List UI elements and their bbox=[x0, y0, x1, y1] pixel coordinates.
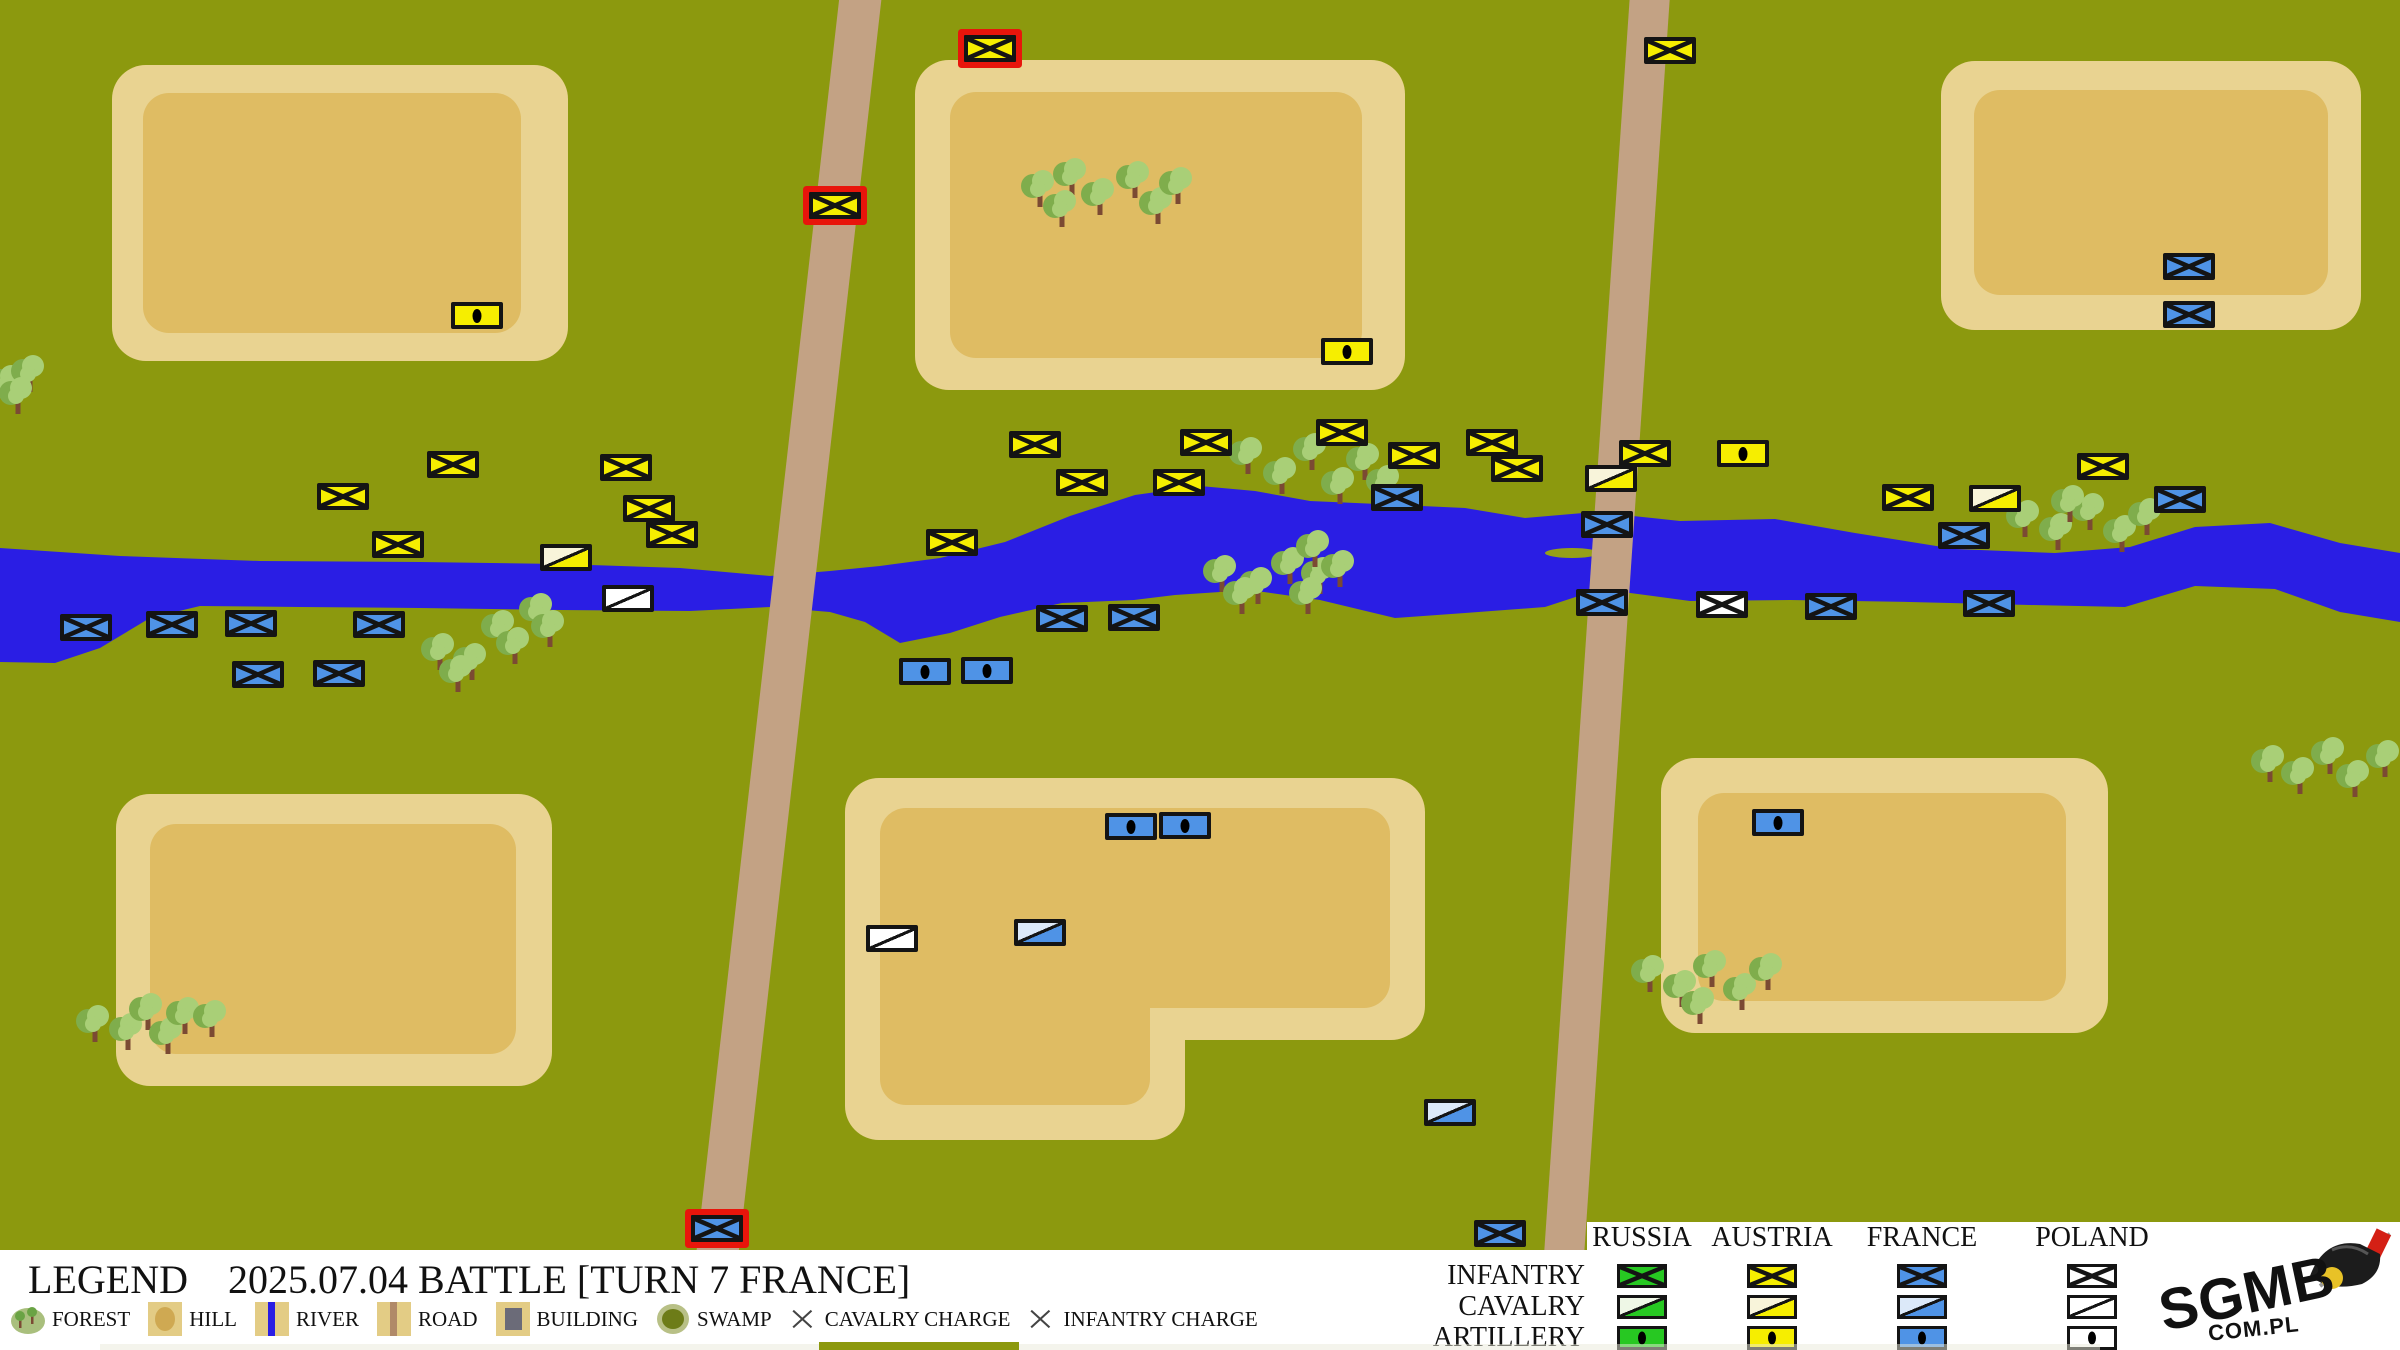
unit-austria-infantry[interactable] bbox=[1153, 469, 1205, 496]
unit-france-cavalry[interactable] bbox=[1424, 1099, 1476, 1126]
legend-bottom-strip bbox=[100, 1344, 2100, 1350]
legend-item-building: BUILDING bbox=[495, 1301, 638, 1337]
artillery-dot bbox=[1343, 345, 1352, 359]
unit-austria-infantry[interactable] bbox=[600, 454, 652, 481]
unit-austria-infantry[interactable] bbox=[1466, 429, 1518, 456]
unit-poland-infantry[interactable] bbox=[1696, 591, 1748, 618]
legend-item-label: FOREST bbox=[52, 1307, 130, 1332]
legend-item-river: RIVER bbox=[254, 1301, 359, 1337]
unit-austria-infantry[interactable] bbox=[1180, 429, 1232, 456]
unit-france-infantry[interactable] bbox=[1805, 593, 1857, 620]
artillery-dot bbox=[1638, 1332, 1646, 1345]
unit-france-infantry[interactable] bbox=[1963, 590, 2015, 617]
legend-unit-russia-cavalry bbox=[1617, 1295, 1667, 1319]
unit-austria-infantry[interactable] bbox=[646, 521, 698, 548]
unit-france-infantry-charging[interactable] bbox=[691, 1215, 743, 1242]
country-header-russia: RUSSIA bbox=[1592, 1222, 1692, 1254]
unit-austria-cavalry[interactable] bbox=[540, 544, 592, 571]
unit-austria-infantry[interactable] bbox=[2077, 453, 2129, 480]
unit-france-infantry[interactable] bbox=[1108, 604, 1160, 631]
unit-austria-artillery[interactable] bbox=[1321, 338, 1373, 365]
legend-item-label: CAVALRY CHARGE bbox=[825, 1307, 1011, 1332]
artillery-dot bbox=[1774, 816, 1783, 830]
legend-item-label: ROAD bbox=[418, 1307, 478, 1332]
unit-france-artillery[interactable] bbox=[899, 658, 951, 685]
legend-unit-poland-cavalry bbox=[2067, 1295, 2117, 1319]
wargame-screenshot: LEGEND 2025.07.04 BATTLE [TURN 7 FRANCE]… bbox=[0, 0, 2400, 1350]
unit-austria-infantry[interactable] bbox=[427, 451, 479, 478]
legend-item-label: BUILDING bbox=[537, 1307, 638, 1332]
legend-item-hill: HILL bbox=[147, 1301, 237, 1337]
unit-austria-infantry[interactable] bbox=[1009, 431, 1061, 458]
legend-unit-austria-infantry bbox=[1747, 1264, 1797, 1288]
unit-austria-infantry[interactable] bbox=[926, 529, 978, 556]
unit-austria-infantry-charging[interactable] bbox=[809, 192, 861, 219]
legend-item-label: RIVER bbox=[296, 1307, 359, 1332]
artillery-dot bbox=[1127, 820, 1136, 834]
unit-france-infantry[interactable] bbox=[1938, 522, 1990, 549]
unit-france-infantry[interactable] bbox=[1581, 511, 1633, 538]
unit-row-label-infantry: INFANTRY bbox=[1325, 1260, 1585, 1292]
building-icon bbox=[495, 1301, 531, 1337]
unit-france-infantry[interactable] bbox=[232, 661, 284, 688]
artillery-dot bbox=[983, 664, 992, 678]
unit-france-infantry[interactable] bbox=[2163, 301, 2215, 328]
legend-item-swamp: SWAMP bbox=[655, 1301, 772, 1337]
unit-france-infantry[interactable] bbox=[313, 660, 365, 687]
unit-france-infantry[interactable] bbox=[146, 611, 198, 638]
terrain-legend-row: FORESTHILLRIVERROADBUILDINGSWAMPCAVALRY … bbox=[10, 1300, 1275, 1338]
artillery-dot bbox=[2088, 1332, 2096, 1345]
artillery-dot bbox=[921, 665, 930, 679]
unit-austria-infantry[interactable] bbox=[1644, 37, 1696, 64]
infantry_charge-icon bbox=[1027, 1301, 1057, 1337]
swamp-icon bbox=[655, 1301, 691, 1337]
legend-item-label: SWAMP bbox=[697, 1307, 772, 1332]
unit-france-artillery[interactable] bbox=[1105, 813, 1157, 840]
battle-map bbox=[0, 0, 2400, 1250]
unit-austria-infantry-charging[interactable] bbox=[964, 35, 1016, 62]
country-header-austria: AUSTRIA bbox=[1711, 1222, 1832, 1254]
unit-france-infantry[interactable] bbox=[60, 614, 112, 641]
unit-france-artillery[interactable] bbox=[1159, 812, 1211, 839]
legend-item-forest: FOREST bbox=[10, 1301, 130, 1337]
unit-france-infantry[interactable] bbox=[1036, 605, 1088, 632]
unit-austria-infantry[interactable] bbox=[623, 495, 675, 522]
unit-austria-infantry[interactable] bbox=[1491, 455, 1543, 482]
unit-france-infantry[interactable] bbox=[1474, 1220, 1526, 1247]
legend-item-cavalry_charge: CAVALRY CHARGE bbox=[789, 1301, 1011, 1337]
legend-unit-france-infantry bbox=[1897, 1264, 1947, 1288]
unit-france-infantry[interactable] bbox=[1371, 484, 1423, 511]
legend-unit-poland-infantry bbox=[2067, 1264, 2117, 1288]
unit-austria-infantry[interactable] bbox=[317, 483, 369, 510]
unit-row-label-cavalry: CAVALRY bbox=[1325, 1291, 1585, 1323]
road-icon bbox=[376, 1301, 412, 1337]
artillery-dot bbox=[1181, 819, 1190, 833]
unit-france-artillery[interactable] bbox=[1752, 809, 1804, 836]
unit-austria-infantry[interactable] bbox=[1619, 440, 1671, 467]
artillery-dot bbox=[1739, 447, 1748, 461]
unit-austria-infantry[interactable] bbox=[1882, 484, 1934, 511]
artillery-dot bbox=[1918, 1332, 1926, 1345]
unit-france-infantry[interactable] bbox=[2163, 253, 2215, 280]
unit-poland-cavalry[interactable] bbox=[602, 585, 654, 612]
unit-france-artillery[interactable] bbox=[961, 657, 1013, 684]
unit-austria-infantry[interactable] bbox=[1316, 419, 1368, 446]
unit-austria-infantry[interactable] bbox=[1056, 469, 1108, 496]
unit-austria-artillery[interactable] bbox=[451, 302, 503, 329]
battle-title: 2025.07.04 BATTLE [TURN 7 FRANCE] bbox=[228, 1256, 910, 1303]
unit-france-infantry[interactable] bbox=[1576, 589, 1628, 616]
unit-france-infantry[interactable] bbox=[2154, 486, 2206, 513]
legend-item-label: INFANTRY CHARGE bbox=[1063, 1307, 1257, 1332]
unit-france-infantry[interactable] bbox=[225, 610, 277, 637]
units-layer bbox=[0, 0, 2400, 1250]
artillery-dot bbox=[473, 309, 482, 323]
legend-unit-russia-infantry bbox=[1617, 1264, 1667, 1288]
country-header-france: FRANCE bbox=[1867, 1222, 1977, 1254]
legend-unit-austria-cavalry bbox=[1747, 1295, 1797, 1319]
unit-austria-infantry[interactable] bbox=[372, 531, 424, 558]
unit-austria-infantry[interactable] bbox=[1388, 442, 1440, 469]
hill-icon bbox=[147, 1301, 183, 1337]
unit-austria-cavalry[interactable] bbox=[1585, 465, 1637, 492]
country-header-poland: POLAND bbox=[2035, 1222, 2149, 1254]
unit-poland-cavalry[interactable] bbox=[866, 925, 918, 952]
legend-item-label: HILL bbox=[189, 1307, 237, 1332]
unit-austria-artillery[interactable] bbox=[1717, 440, 1769, 467]
legend-item-infantry_charge: INFANTRY CHARGE bbox=[1027, 1301, 1257, 1337]
map-edge-strip bbox=[819, 1342, 1019, 1350]
forest-icon bbox=[10, 1301, 46, 1337]
legend-title: LEGEND bbox=[28, 1256, 188, 1303]
unit-france-infantry[interactable] bbox=[353, 611, 405, 638]
unit-france-cavalry[interactable] bbox=[1014, 919, 1066, 946]
artillery-dot bbox=[1768, 1332, 1776, 1345]
sgmb-logo: SGMB COM.PL bbox=[2150, 1238, 2400, 1350]
river-icon bbox=[254, 1301, 290, 1337]
cavalry_charge-icon bbox=[789, 1301, 819, 1337]
legend-item-road: ROAD bbox=[376, 1301, 478, 1337]
unit-austria-cavalry[interactable] bbox=[1969, 485, 2021, 512]
legend-unit-france-cavalry bbox=[1897, 1295, 1947, 1319]
